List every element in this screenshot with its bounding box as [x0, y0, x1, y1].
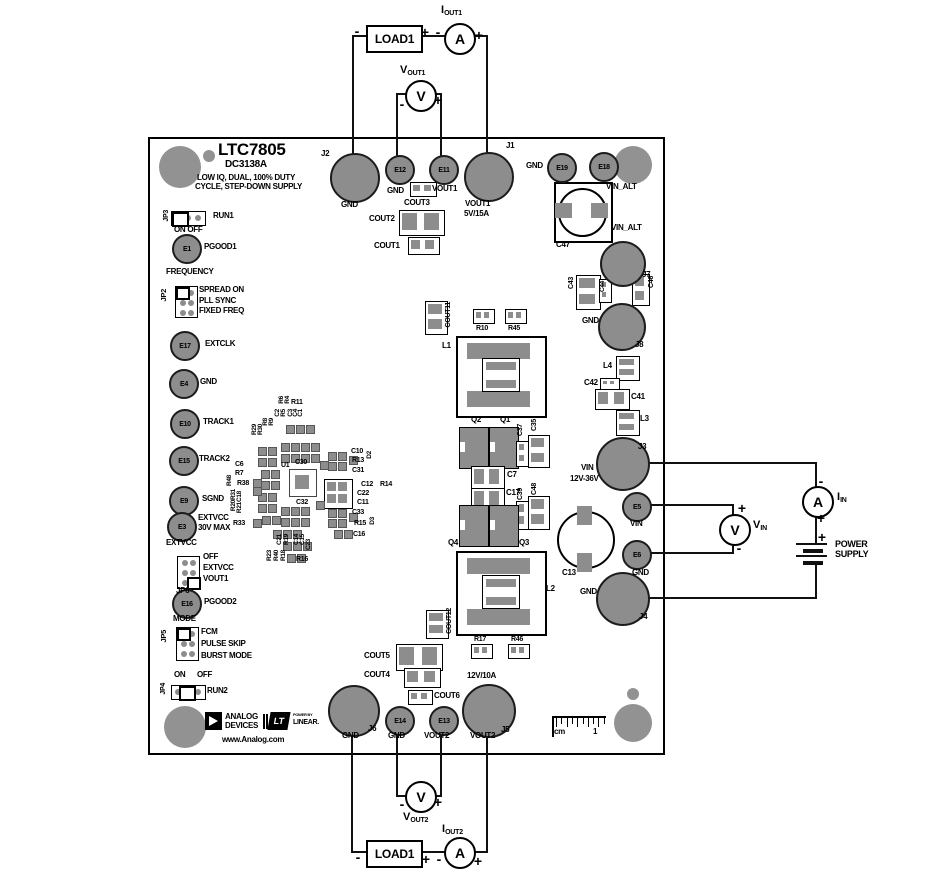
- cm-ruler: cm 1: [552, 716, 606, 738]
- ruler-cm-label: cm: [554, 728, 565, 736]
- silkscreen-label: C31: [352, 467, 364, 474]
- silkscreen-label: J5: [501, 726, 509, 734]
- smd-pad: [287, 554, 296, 563]
- component-pad: [467, 558, 530, 574]
- component-pad: [531, 514, 544, 524]
- mounting-hole: [614, 704, 652, 742]
- silkscreen-label: 30V MAX: [198, 524, 230, 532]
- meter-label-sub: IN: [840, 497, 847, 504]
- silkscreen-label: Q3: [519, 539, 529, 547]
- silkscreen-label: C12: [361, 481, 373, 488]
- silkscreen-label: RUN2: [207, 687, 228, 695]
- generated-layer: E12E11E19E18E1E17E4E10E15E9E3E16E5E6E14E…: [0, 0, 935, 888]
- component-pad: [467, 391, 530, 407]
- component-pad: [579, 294, 595, 304]
- silkscreen-label: ON: [174, 671, 185, 679]
- silkscreen-label: C42: [584, 379, 598, 387]
- smd-pad: [281, 507, 290, 516]
- meter-ammeter: A: [444, 23, 476, 55]
- smd-pad: [291, 518, 300, 527]
- silkscreen-label: JP6: [176, 587, 189, 595]
- silkscreen-label: R46: [511, 636, 523, 643]
- jumper-shunt-JP4: [179, 686, 196, 701]
- silkscreen-label: GND: [388, 732, 405, 740]
- component-pad: [482, 647, 487, 653]
- component-pad: [484, 312, 489, 318]
- silkscreen-label: GND: [632, 569, 649, 577]
- component-pad: [591, 203, 608, 218]
- silkscreen-label: C11: [357, 499, 369, 506]
- silkscreen-label: MODE: [173, 615, 196, 623]
- smd-pad: [311, 454, 320, 463]
- smd-pad: [253, 519, 262, 528]
- jumper-pin: [189, 641, 195, 647]
- logo-power-by: POWER BY: [293, 713, 312, 717]
- silkscreen-vlabel: C48: [531, 483, 538, 495]
- silkscreen-label: PGOOD2: [204, 598, 236, 606]
- smd-pad: [281, 518, 290, 527]
- smd-pad: [261, 481, 270, 490]
- silkscreen-label: ON OFF: [174, 226, 202, 234]
- test-point-E12: E12: [385, 155, 415, 185]
- polarity-sign: +: [434, 795, 442, 809]
- test-point-E11: E11: [429, 155, 459, 185]
- smd-pad: [262, 516, 271, 525]
- ruler-tick: [561, 718, 562, 724]
- component-pad: [411, 240, 420, 249]
- smd-pad: [271, 481, 280, 490]
- ruler-tick: [604, 718, 605, 724]
- silkscreen-vlabel: R48: [227, 475, 234, 486]
- polarity-sign: +: [422, 852, 430, 866]
- polarity-sign: +: [475, 28, 483, 42]
- smd-pad: [268, 458, 277, 467]
- silkscreen-label: J6: [368, 725, 376, 733]
- component-COUT2: [399, 210, 445, 236]
- silkscreen-label: R45: [508, 325, 520, 332]
- notch: [460, 442, 465, 452]
- smd-pad: [253, 487, 262, 496]
- meter-ammeter: A: [444, 837, 476, 869]
- component-C48: [528, 496, 550, 530]
- smd-pad: [281, 443, 290, 452]
- ruler-tick: [577, 718, 578, 727]
- component-pad: [327, 494, 336, 503]
- meter-label-sub: OUT2: [445, 829, 463, 836]
- meter-label: IOUT1: [441, 5, 462, 16]
- component-Q3: [489, 505, 519, 547]
- polarity-sign: -: [819, 474, 824, 488]
- silkscreen-label: C33: [352, 509, 364, 516]
- silkscreen-label: OFF: [197, 671, 212, 679]
- smd-pad: [258, 504, 267, 513]
- power-supply-label: SUPPLY: [835, 550, 868, 559]
- smd-pad: [328, 509, 337, 518]
- polarity-sign: -: [400, 797, 405, 811]
- silkscreen-vlabel: C46: [648, 276, 655, 288]
- smd-pad: [311, 443, 320, 452]
- component-pad: [429, 613, 443, 621]
- silkscreen-label: GND: [387, 187, 404, 195]
- component-COUT1: [408, 237, 440, 255]
- silkscreen-vlabel: COUT12: [446, 608, 453, 634]
- component-pad: [428, 304, 442, 314]
- silkscreen-vlabel: C39: [517, 488, 524, 500]
- jumper-pin: [190, 570, 196, 576]
- silkscreen-label: 12V-36V: [570, 475, 599, 483]
- component-R17: [471, 644, 493, 659]
- jumper-pin: [180, 300, 186, 306]
- silkscreen-label: L1: [442, 342, 451, 350]
- silkscreen-vlabel: C23: [306, 539, 313, 550]
- silkscreen-label: C22: [357, 490, 369, 497]
- component-pad: [531, 499, 544, 509]
- silkscreen-label: J4: [639, 613, 647, 621]
- mounting-hole: [164, 706, 206, 748]
- silkscreen-label: R38: [237, 480, 249, 487]
- polarity-sign: +: [474, 854, 482, 868]
- analog-devices-logo: ANALOG DEVICES LT POWER BY LINEAR. www.A…: [205, 710, 315, 750]
- test-point-E17: E17: [170, 331, 200, 361]
- component-R45: [505, 309, 527, 324]
- silkscreen-label: SPREAD ON: [199, 286, 244, 294]
- silkscreen-label: Q1: [500, 416, 510, 424]
- ruler-tick: [556, 718, 557, 727]
- component-pad: [474, 469, 484, 484]
- component-C43: [576, 275, 601, 310]
- silkscreen-label: L4: [603, 362, 612, 370]
- silkscreen-vlabel: D2: [367, 451, 374, 459]
- meter-label: VOUT2: [403, 812, 428, 823]
- smd-pad: [271, 470, 280, 479]
- logo-analog: ANALOG: [225, 713, 258, 721]
- polarity-sign: -: [436, 25, 441, 39]
- smd-pad: [316, 501, 325, 510]
- component-U1: [289, 469, 317, 497]
- component-pad: [577, 553, 592, 572]
- silkscreen-label: VOUT2: [424, 732, 449, 740]
- component-Q1: [489, 427, 519, 469]
- silkscreen-label: C6: [235, 461, 243, 468]
- smd-pad: [291, 443, 300, 452]
- component-pad: [619, 413, 634, 419]
- silkscreen-label: VIN_ALT: [606, 183, 637, 191]
- silkscreen-label: L2: [546, 585, 555, 593]
- component-pad: [610, 381, 614, 384]
- logo-divider: [263, 714, 265, 729]
- smd-pad: [328, 452, 337, 461]
- silkscreen-label: PLL SYNC: [199, 297, 236, 305]
- smd-pad: [301, 507, 310, 516]
- silkscreen-label: C7: [507, 471, 517, 479]
- ruler-tick: [567, 718, 568, 727]
- component-pad: [486, 579, 516, 587]
- test-point-E18: E18: [589, 152, 619, 182]
- silkscreen-vlabel: JP4: [160, 683, 167, 695]
- load-box: LOAD1: [366, 840, 423, 868]
- ruler-1-label: 1: [593, 728, 597, 736]
- silkscreen-label: EXTVCC: [166, 539, 197, 547]
- component-pad: [425, 240, 434, 249]
- component-pad: [619, 369, 634, 375]
- jumper-shunt-JP2: [176, 287, 190, 300]
- silkscreen-label: GND: [200, 378, 217, 386]
- polarity-sign: -: [737, 541, 742, 555]
- component-pad: [635, 291, 644, 300]
- silkscreen-vlabel: COUT11: [445, 302, 452, 327]
- silkscreen-label: COUT3: [404, 199, 430, 207]
- jumper-shunt-JP5: [177, 628, 191, 641]
- silkscreen-label: VOUT1: [465, 200, 490, 208]
- turret-J1: [464, 152, 514, 202]
- component-pad: [531, 453, 544, 462]
- component-COUT5: [396, 644, 443, 671]
- silkscreen-label: C10: [351, 448, 363, 455]
- jumper-pin: [188, 300, 194, 306]
- component-pad: [489, 491, 499, 506]
- component-pad: [519, 444, 524, 450]
- component-pad: [338, 482, 347, 491]
- meter-voltmeter: V: [405, 80, 437, 112]
- component-pad: [411, 693, 417, 699]
- smd-pad: [286, 425, 295, 434]
- component-pad: [486, 597, 516, 605]
- silkscreen-label: 5V/15A: [464, 210, 489, 218]
- test-point-E1: E1: [172, 234, 202, 264]
- silkscreen-label: R10: [476, 325, 488, 332]
- silkscreen-label: R15: [354, 520, 366, 527]
- turret-J7: [600, 241, 646, 287]
- component-pad: [424, 213, 439, 230]
- silkscreen-label: COUT4: [364, 671, 390, 679]
- inductor-core: [482, 358, 520, 392]
- silkscreen-label: R17: [474, 636, 486, 643]
- smd-pad: [258, 458, 267, 467]
- silkscreen-vlabel: C35: [531, 419, 538, 431]
- wire-segment: [352, 35, 354, 171]
- wire-segment: [629, 597, 817, 599]
- component-pad: [295, 475, 309, 489]
- component-pad: [555, 203, 572, 218]
- component-pad: [467, 343, 530, 359]
- polarity-sign: +: [738, 501, 746, 515]
- component-pad: [474, 647, 479, 653]
- silkscreen-vlabel: JP2: [160, 289, 168, 301]
- polarity-sign: -: [355, 24, 360, 38]
- component-pad: [619, 359, 634, 365]
- ruler-tick: [598, 718, 599, 727]
- silkscreen-label: J1: [506, 142, 514, 150]
- component-pad: [519, 504, 524, 512]
- polarity-sign: +: [818, 530, 826, 544]
- silkscreen-label: C16: [353, 531, 365, 538]
- silkscreen-label: Q2: [471, 416, 481, 424]
- component-pad: [338, 494, 347, 503]
- component-C41: [595, 389, 630, 410]
- silkscreen-label: GND: [342, 732, 359, 740]
- smd-pad: [258, 447, 267, 456]
- silkscreen-label: RUN1: [213, 212, 234, 220]
- meter-label: VOUT1: [400, 65, 425, 76]
- adi-triangle-glyph: [209, 716, 218, 726]
- silkscreen-label: VIN_ALT: [611, 224, 642, 232]
- silkscreen-label: Q4: [448, 539, 458, 547]
- silkscreen-vlabel: R18: [281, 550, 288, 561]
- jumper-pin: [182, 570, 188, 576]
- meter-label: IIN: [837, 492, 847, 503]
- smd-pad: [338, 462, 347, 471]
- silkscreen-vlabel: D3: [370, 517, 377, 525]
- component-L1: [456, 336, 547, 418]
- silkscreen-label: FREQUENCY: [166, 268, 214, 276]
- smd-pad: [328, 519, 337, 528]
- component-pad: [531, 438, 544, 447]
- meter-label-sub: OUT1: [444, 10, 462, 17]
- component-pad: [421, 693, 427, 699]
- component-pad: [428, 319, 442, 329]
- test-point-E15: E15: [169, 446, 199, 476]
- component-C13: [557, 511, 615, 569]
- logo-url: www.Analog.com: [222, 736, 284, 744]
- polarity-sign: +: [817, 511, 825, 525]
- smd-pad: [268, 447, 277, 456]
- silkscreen-label: C30: [295, 459, 307, 466]
- silkscreen-label: R13: [352, 457, 364, 464]
- silkscreen-vlabel: C37: [517, 424, 524, 436]
- jumper-pin: [190, 560, 196, 566]
- silkscreen-vlabel: C43: [568, 277, 575, 289]
- jumper-pin: [189, 651, 195, 657]
- smd-pad: [268, 504, 277, 513]
- component-C35: [528, 435, 550, 468]
- meter-voltmeter: V: [719, 514, 751, 546]
- smd-pad: [334, 530, 343, 539]
- silkscreen-label: C32: [296, 499, 308, 506]
- silkscreen-label: C41: [631, 393, 645, 401]
- silkscreen-label: C13: [562, 569, 576, 577]
- silkscreen-label: GND: [526, 162, 543, 170]
- silkscreen-label: VIN: [581, 464, 593, 472]
- test-point-E19: E19: [547, 153, 577, 183]
- silkscreen-label: R11: [291, 399, 303, 406]
- component-pad: [399, 647, 414, 665]
- test-point-E10: E10: [170, 409, 200, 439]
- silkscreen-label: BURST MODE: [201, 652, 252, 660]
- silkscreen-label: J3: [638, 443, 646, 451]
- notch: [490, 442, 495, 452]
- silkscreen-vlabel: R21C18: [237, 491, 244, 513]
- component-pad: [489, 469, 499, 484]
- silkscreen-label: R14: [380, 481, 392, 488]
- polarity-sign: -: [818, 556, 823, 570]
- silkscreen-label: LOW IQ, DUAL, 100% DUTY: [197, 174, 295, 182]
- component-pad: [598, 392, 608, 404]
- component-pad: [511, 647, 516, 653]
- component-C47: [554, 182, 613, 243]
- component-Q4: [459, 505, 489, 547]
- component-COUT6: [408, 690, 433, 705]
- meter-voltmeter: V: [405, 781, 437, 813]
- ruler-tick: [572, 718, 573, 724]
- silkscreen-vlabel: JP3: [163, 210, 170, 222]
- smd-pad: [291, 507, 300, 516]
- silkscreen-label: CYCLE, STEP-DOWN SUPPLY: [195, 183, 302, 191]
- jumper-pin: [180, 310, 186, 316]
- silkscreen-label: U1: [281, 462, 289, 469]
- silkscreen-label: GND: [580, 588, 597, 596]
- silkscreen-label: L3: [640, 415, 649, 423]
- polarity-sign: +: [434, 93, 442, 107]
- logo-devices: DEVICES: [225, 722, 258, 730]
- meter-label-sub: IN: [760, 525, 767, 532]
- smd-pad: [338, 509, 347, 518]
- smd-pad: [328, 462, 337, 471]
- smd-pad: [338, 452, 347, 461]
- battery-plate: [803, 549, 823, 553]
- component-pad: [424, 185, 431, 191]
- silkscreen-label: R7: [235, 470, 243, 477]
- linear-technology-icon: LT: [267, 712, 290, 730]
- notch: [490, 520, 495, 530]
- component-pad: [603, 381, 607, 384]
- silkscreen-label: TRACK2: [199, 455, 230, 463]
- component-pad: [602, 292, 606, 297]
- silkscreen-label: VOUT2: [470, 732, 495, 740]
- silkscreen-label: PULSE SKIP: [201, 640, 246, 648]
- silkscreen-label: COUT1: [374, 242, 400, 250]
- load-box: LOAD1: [366, 25, 423, 53]
- component-pad: [413, 185, 420, 191]
- component-pad: [579, 278, 595, 288]
- component-C7: [471, 466, 505, 490]
- silkscreen-vlabel: R19: [284, 534, 291, 545]
- wire-segment: [486, 35, 488, 171]
- meter-label: VIN: [753, 520, 767, 531]
- component-pad: [407, 671, 418, 682]
- polarity-sign: -: [400, 97, 405, 111]
- silkscreen-label: COUT5: [364, 652, 390, 660]
- smd-pad: [272, 516, 281, 525]
- silkscreen-label: SGND: [202, 495, 224, 503]
- component-pad: [327, 482, 336, 491]
- component-pad: [474, 491, 484, 506]
- silkscreen-label: R33: [233, 520, 245, 527]
- component-pad: [519, 516, 524, 524]
- component-pad: [508, 312, 513, 318]
- smd-pad: [268, 493, 277, 502]
- component-pad: [422, 647, 437, 665]
- smd-pad: [338, 519, 347, 528]
- silkscreen-label: OFF: [203, 553, 218, 561]
- inductor-core: [482, 575, 520, 609]
- silkscreen-label: DC3138A: [225, 160, 267, 170]
- silkscreen-label: R16: [296, 556, 308, 563]
- smd-pad: [301, 518, 310, 527]
- jumper-pin: [188, 310, 194, 316]
- meter-label-sub: OUT1: [407, 70, 425, 77]
- component-pad: [467, 609, 530, 625]
- meter-label-sub: OUT2: [410, 817, 428, 824]
- component-pad: [402, 213, 417, 230]
- silkscreen-vlabel: JP5: [160, 630, 168, 642]
- silkscreen-label: LTC7805: [218, 141, 286, 158]
- silkscreen-label: FIXED FREQ: [199, 307, 244, 315]
- silkscreen-label: VOUT1: [203, 575, 228, 583]
- silkscreen-label: VOUT1: [432, 185, 457, 193]
- component-pad: [486, 380, 516, 388]
- smd-pad: [261, 470, 270, 479]
- component-pad: [429, 625, 443, 633]
